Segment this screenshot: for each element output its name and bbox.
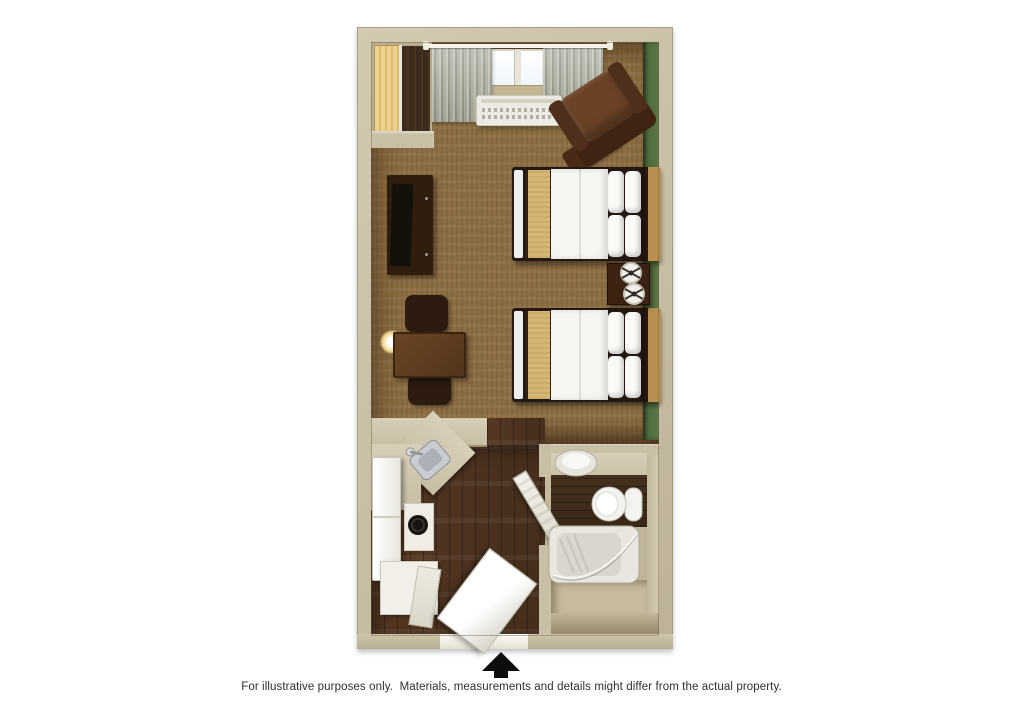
- floor-plan: [357, 27, 673, 649]
- disclaimer-caption: For illustrative purposes only. Material…: [0, 681, 1023, 693]
- arrow-stem: [494, 670, 508, 678]
- interior-wall-outline: [371, 42, 659, 636]
- arrow-head: [482, 652, 520, 671]
- entrance-arrow-icon: [481, 652, 521, 678]
- floor-plan-page: For illustrative purposes only. Material…: [0, 0, 1023, 716]
